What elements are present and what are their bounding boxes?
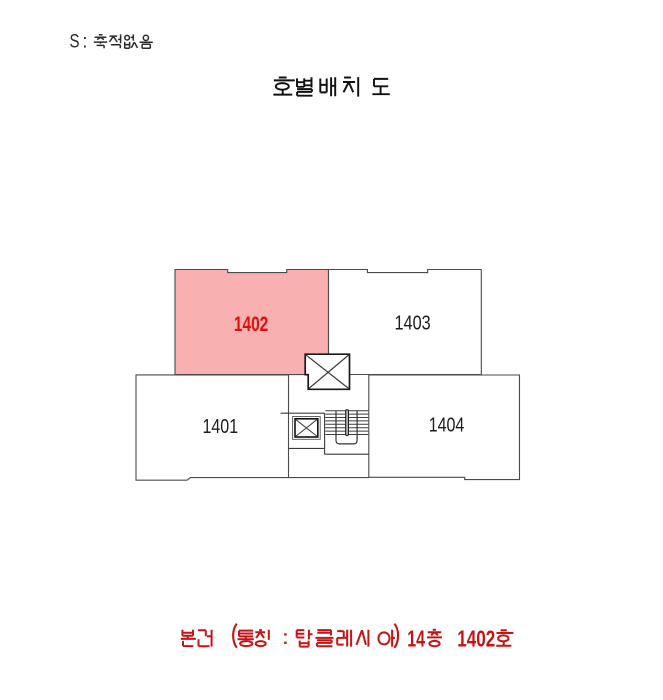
svg-text:1402: 1402 <box>457 626 495 652</box>
svg-text:1402: 1402 <box>234 313 268 336</box>
svg-text:1403: 1403 <box>395 312 431 335</box>
svg-text:14: 14 <box>407 626 425 652</box>
svg-text:S: S <box>70 31 80 52</box>
svg-text::: : <box>82 31 87 52</box>
svg-text:1401: 1401 <box>203 416 239 438</box>
svg-text:1404: 1404 <box>429 415 465 437</box>
